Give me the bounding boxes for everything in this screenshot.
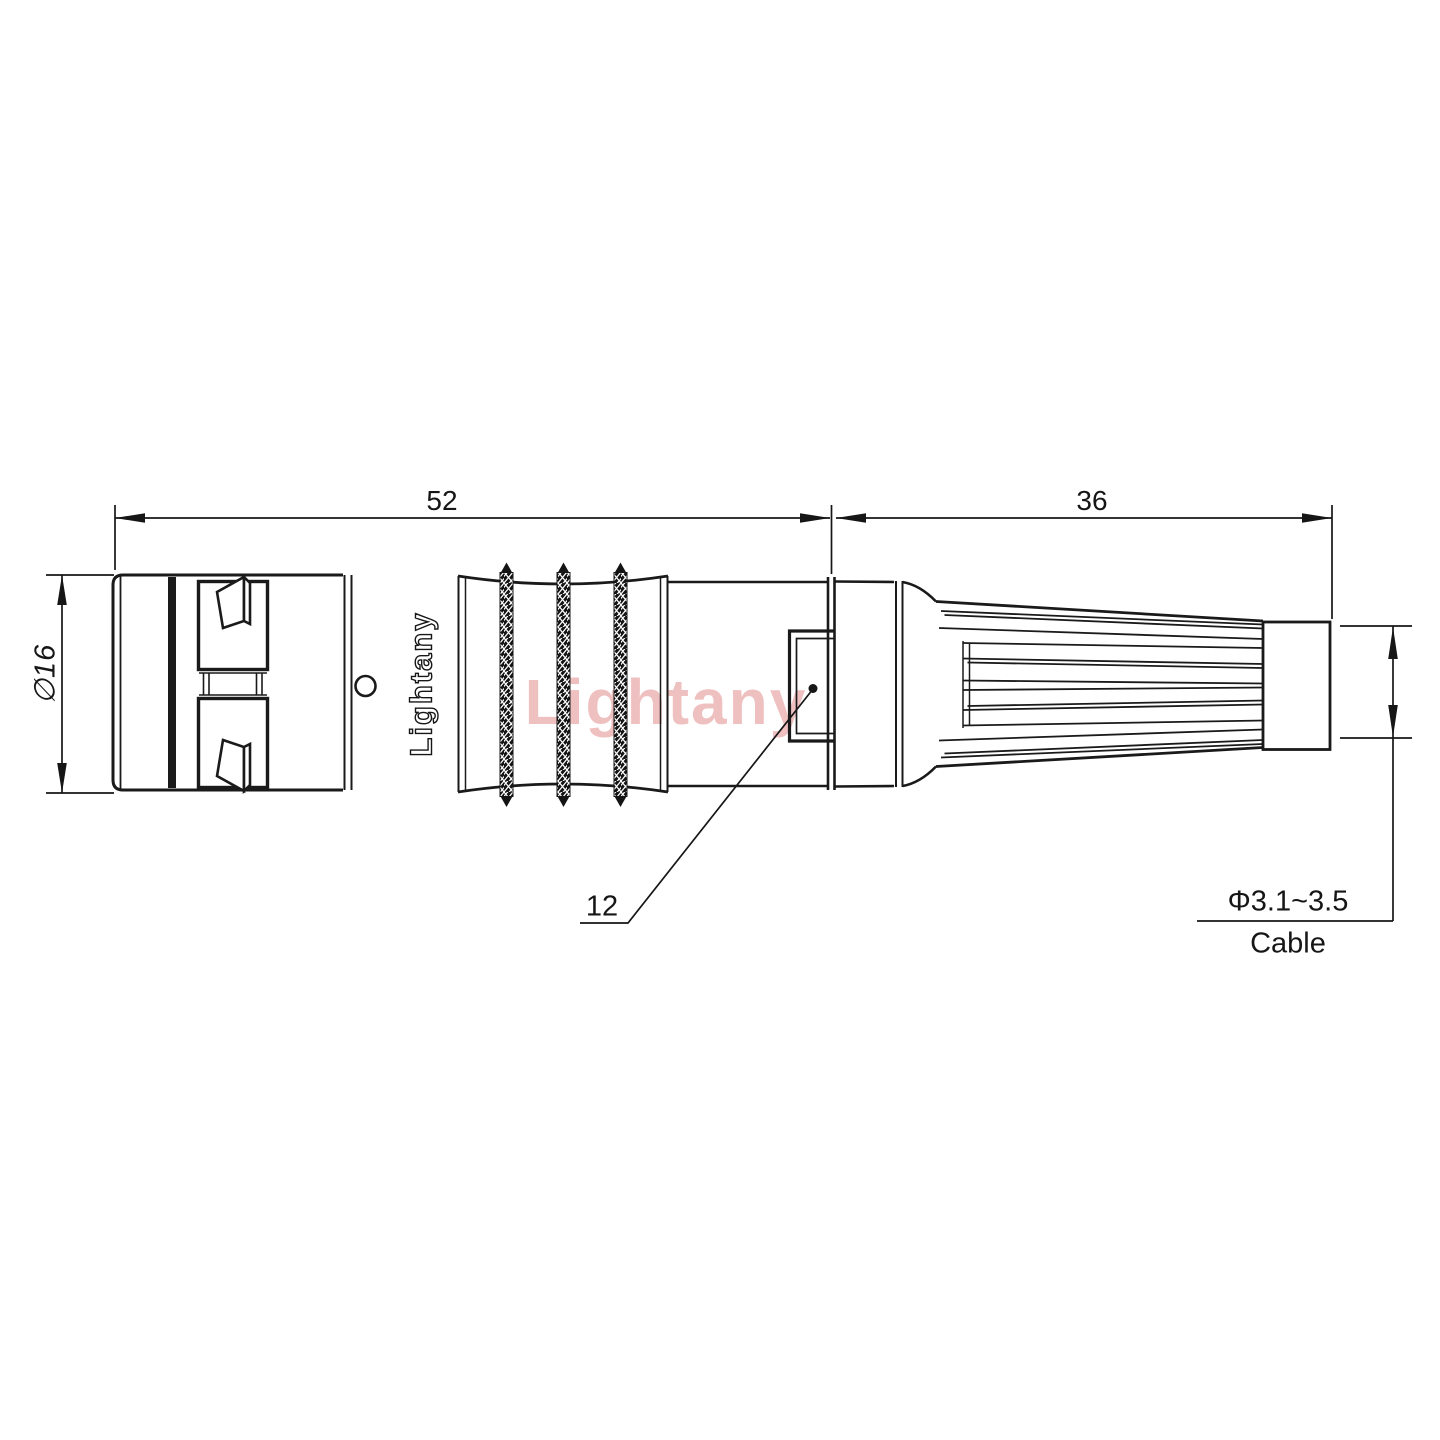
connector-front-shell — [113, 575, 376, 791]
dimension-label-52: 52 — [426, 487, 457, 515]
latch-key-bottom-side — [244, 744, 250, 791]
cable-word-label: Cable — [1250, 930, 1326, 959]
boot-shoulder-bottom — [903, 767, 937, 787]
collar-top — [835, 582, 894, 583]
body-brand-text: Lightany — [406, 611, 437, 756]
collar-end-lines — [896, 581, 903, 787]
cable-end-sleeve — [1263, 622, 1330, 750]
arrow-36-left — [836, 513, 866, 523]
latch-neck-ends — [204, 673, 263, 695]
collar-bottom — [835, 786, 894, 787]
drawing-canvas: Lightany — [0, 0, 1440, 1440]
connector-line-art — [0, 0, 1440, 1440]
arrow-diameter-top — [57, 575, 67, 605]
knurl-band — [557, 563, 570, 808]
vent-hole — [356, 676, 376, 696]
arrow-cable-bottom — [1388, 705, 1398, 737]
rib-front-edge — [963, 641, 970, 728]
body-end-lines — [828, 577, 835, 790]
knurl-band — [500, 563, 513, 808]
arrow-52-right — [800, 513, 830, 523]
dimension-label-diameter: ∅16 — [32, 644, 61, 705]
boot-ribs — [939, 611, 1263, 758]
boot-shoulder-top — [903, 582, 937, 602]
leader-dot — [809, 684, 818, 693]
knurl-band — [614, 563, 627, 808]
strain-relief-boot — [835, 581, 1330, 787]
arrow-diameter-bottom — [57, 763, 67, 793]
dimension-label-36: 36 — [1076, 487, 1107, 515]
latch-key-top-face — [217, 577, 244, 628]
shell-section-line — [345, 575, 352, 790]
arrow-52-left — [115, 513, 145, 523]
latch-key-bottom-face — [217, 740, 244, 791]
arrow-cable-top — [1388, 627, 1398, 659]
dimension-label-12: 12 — [586, 893, 618, 922]
cable-diameter-label: Φ3.1~3.5 — [1228, 888, 1349, 917]
knurl-bands — [500, 563, 627, 808]
rear-body — [668, 577, 835, 790]
latch-key-top-side — [244, 577, 250, 624]
arrow-36-right — [1302, 513, 1332, 523]
dimension-lines — [46, 505, 1412, 923]
